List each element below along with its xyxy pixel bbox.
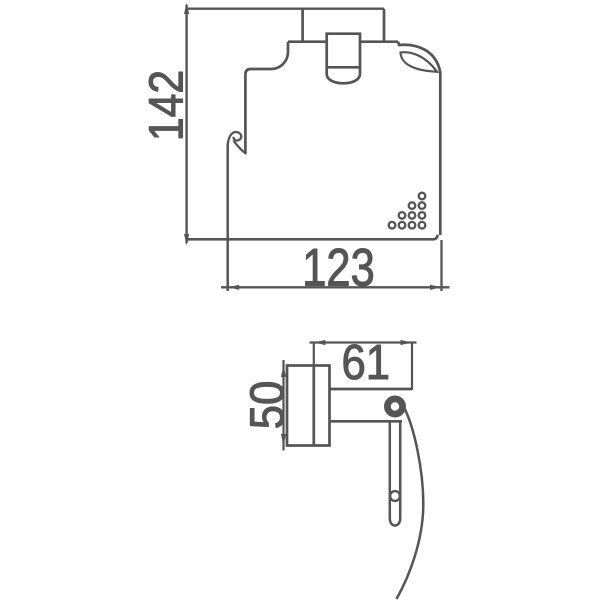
svg-text:142: 142: [139, 70, 193, 141]
svg-text:123: 123: [302, 238, 374, 297]
svg-text:50: 50: [239, 381, 294, 430]
svg-text:61: 61: [341, 335, 390, 390]
